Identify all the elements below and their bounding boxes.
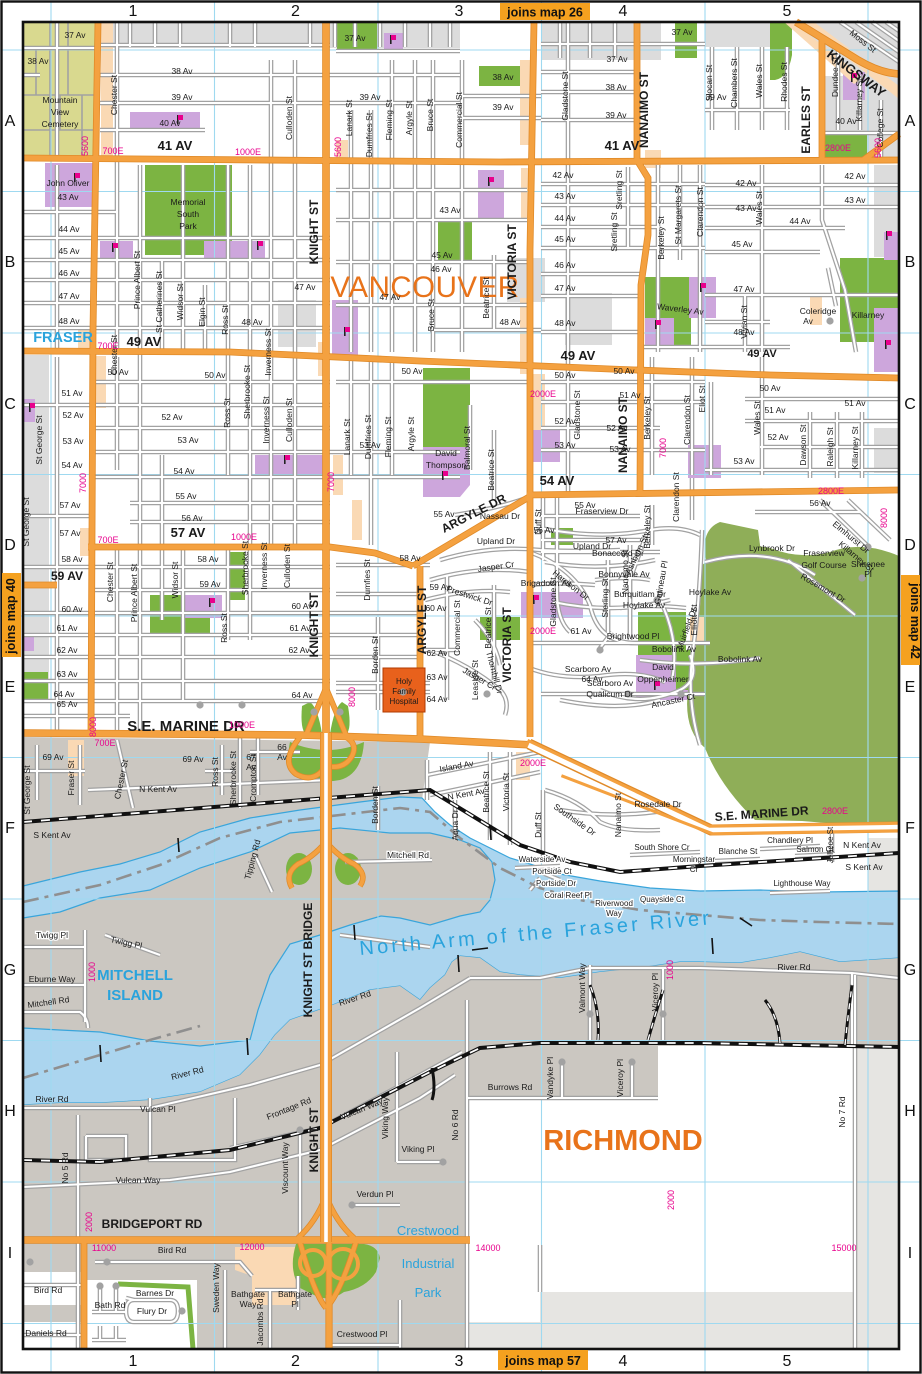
svg-text:Blanche St: Blanche St (719, 847, 758, 856)
svg-text:Victoria St: Victoria St (501, 772, 511, 811)
svg-text:46 Av: 46 Av (58, 268, 80, 278)
svg-text:Park: Park (415, 1285, 442, 1300)
svg-text:43 Av: 43 Av (554, 191, 576, 201)
svg-text:2000: 2000 (84, 1212, 94, 1232)
svg-text:E: E (5, 679, 16, 696)
svg-text:62 Av: 62 Av (56, 645, 78, 655)
svg-text:joins map 40: joins map 40 (4, 578, 18, 655)
svg-text:58 Av: 58 Av (197, 554, 219, 564)
svg-text:Berkeley St: Berkeley St (656, 216, 666, 260)
svg-text:58 Av: 58 Av (61, 554, 83, 564)
svg-text:Clarendon St: Clarendon St (695, 187, 705, 237)
svg-text:5: 5 (783, 1353, 792, 1370)
svg-text:Bruce St: Bruce St (426, 298, 436, 331)
svg-text:39 Av: 39 Av (171, 92, 193, 102)
svg-text:B: B (905, 254, 916, 271)
svg-text:NANAIMO ST: NANAIMO ST (637, 71, 651, 148)
svg-text:G: G (4, 962, 16, 979)
svg-text:FRASER: FRASER (33, 330, 93, 346)
svg-text:58 Av: 58 Av (399, 553, 421, 563)
svg-text:A: A (905, 113, 916, 130)
svg-text:KNIGHT ST: KNIGHT ST (307, 199, 321, 264)
svg-text:53 Av: 53 Av (609, 444, 631, 454)
svg-text:Inverness St: Inverness St (261, 396, 271, 444)
svg-text:42 Av: 42 Av (735, 178, 757, 188)
svg-text:KNIGHT ST: KNIGHT ST (307, 1107, 321, 1172)
svg-text:Inverness St: Inverness St (259, 542, 269, 590)
svg-text:Scarboro Av: Scarboro Av (565, 664, 612, 674)
svg-text:8000: 8000 (879, 508, 889, 528)
svg-text:St Margarets St: St Margarets St (673, 185, 683, 245)
svg-text:MITCHELL: MITCHELL (97, 967, 173, 984)
svg-text:59 AV: 59 AV (51, 569, 83, 583)
svg-text:Slocan St: Slocan St (704, 64, 714, 101)
svg-text:Park: Park (179, 221, 197, 231)
svg-text:Culloden St: Culloden St (282, 543, 292, 588)
svg-text:7000: 7000 (326, 472, 336, 492)
svg-text:Av: Av (277, 752, 288, 762)
svg-text:52 Av: 52 Av (161, 412, 183, 422)
svg-text:52 Av: 52 Av (606, 423, 628, 433)
svg-text:52 Av: 52 Av (767, 432, 789, 442)
svg-text:Bruce St: Bruce St (425, 98, 435, 131)
svg-text:Eliot St: Eliot St (697, 385, 707, 413)
svg-text:Qualicum Dr: Qualicum Dr (586, 689, 633, 699)
svg-text:2000E: 2000E (530, 389, 556, 399)
svg-text:42 Av: 42 Av (844, 171, 866, 181)
svg-text:Ross St: Ross St (210, 756, 220, 786)
svg-text:F: F (5, 820, 15, 837)
svg-text:50 Av: 50 Av (554, 370, 576, 380)
svg-text:59 Av: 59 Av (199, 579, 221, 589)
svg-text:54 Av: 54 Av (61, 460, 83, 470)
svg-text:47 Av: 47 Av (294, 282, 316, 292)
svg-text:Pl: Pl (864, 569, 872, 579)
svg-text:Scarboro Av: Scarboro Av (587, 678, 634, 688)
svg-text:F: F (905, 820, 915, 837)
svg-text:47 Av: 47 Av (733, 284, 755, 294)
svg-text:1000E: 1000E (229, 720, 255, 730)
svg-text:Clarendon St: Clarendon St (682, 395, 692, 445)
svg-text:Family: Family (392, 687, 416, 696)
svg-text:51 Av: 51 Av (844, 398, 866, 408)
svg-text:Sweden Way: Sweden Way (211, 1262, 221, 1313)
svg-text:St George St: St George St (34, 415, 44, 465)
svg-text:ARGYLE ST: ARGYLE ST (415, 585, 429, 654)
svg-text:50 Av: 50 Av (759, 383, 781, 393)
svg-text:53 Av: 53 Av (554, 440, 576, 450)
svg-text:64 Av: 64 Av (53, 689, 75, 699)
svg-text:Dumfries St: Dumfries St (364, 112, 374, 157)
svg-text:S Kent Av: S Kent Av (845, 862, 883, 872)
svg-text:Clarendon St: Clarendon St (671, 472, 681, 522)
svg-text:Valmont Way: Valmont Way (577, 962, 587, 1012)
svg-text:Hoylake Av: Hoylake Av (689, 587, 732, 597)
svg-text:Bathgate: Bathgate (231, 1289, 265, 1299)
svg-text:Prince Albert St: Prince Albert St (132, 250, 142, 309)
svg-text:Dumfies St: Dumfies St (362, 559, 372, 601)
svg-text:61 Av: 61 Av (289, 623, 311, 633)
svg-text:David: David (652, 662, 674, 672)
svg-text:Beatrice St: Beatrice St (483, 607, 493, 649)
svg-text:37 Av: 37 Av (64, 30, 86, 40)
svg-text:Fleming St: Fleming St (384, 99, 394, 140)
svg-text:48 Av: 48 Av (241, 317, 263, 327)
svg-text:Quayside Ct: Quayside Ct (640, 895, 685, 904)
svg-text:Mountain: Mountain (43, 95, 78, 105)
svg-text:Verdun Pl: Verdun Pl (357, 1189, 394, 1199)
svg-text:Viking Pl: Viking Pl (402, 1144, 435, 1154)
svg-text:Inverness St: Inverness St (263, 328, 273, 376)
svg-text:John Oliver: John Oliver (47, 178, 90, 188)
svg-text:2800E: 2800E (825, 143, 851, 153)
svg-text:64 Av: 64 Av (426, 694, 448, 704)
svg-text:Oppenheimer: Oppenheimer (637, 674, 689, 684)
svg-text:1000: 1000 (665, 960, 675, 980)
svg-text:49 AV: 49 AV (747, 348, 777, 360)
svg-text:Argyle St: Argyle St (406, 416, 416, 451)
svg-text:South Shore Cr: South Shore Cr (634, 843, 689, 852)
svg-text:Bath Rd: Bath Rd (95, 1300, 126, 1310)
svg-text:Chandlery Pl: Chandlery Pl (767, 836, 813, 845)
svg-text:57 Av: 57 Av (59, 528, 81, 538)
svg-text:41 AV: 41 AV (158, 138, 193, 153)
svg-text:Pl: Pl (291, 1299, 299, 1309)
svg-text:2000E: 2000E (520, 758, 546, 768)
svg-text:Rhodes St: Rhodes St (779, 62, 789, 102)
svg-text:Fraserview Dr: Fraserview Dr (576, 506, 629, 516)
svg-text:River Rd: River Rd (35, 1094, 68, 1104)
svg-text:38 Av: 38 Av (492, 72, 514, 82)
svg-text:2: 2 (291, 1353, 300, 1370)
svg-text:Riverwood: Riverwood (595, 899, 633, 908)
svg-text:S Kent Av: S Kent Av (33, 830, 71, 840)
svg-text:joins map 26: joins map 26 (506, 6, 583, 20)
svg-text:Berkeley St: Berkeley St (642, 396, 652, 440)
svg-text:64 Av: 64 Av (291, 690, 313, 700)
svg-text:Bird Rd: Bird Rd (34, 1285, 63, 1295)
svg-text:54 Av: 54 Av (173, 466, 195, 476)
svg-text:Raleigh St: Raleigh St (825, 427, 835, 467)
svg-text:Coral Reef Pl: Coral Reef Pl (544, 891, 592, 900)
svg-text:No 7 Rd: No 7 Rd (837, 1096, 847, 1127)
svg-text:E: E (905, 679, 916, 696)
svg-text:49 AV: 49 AV (127, 334, 162, 349)
svg-text:Killarney St: Killarney St (854, 78, 864, 122)
svg-text:C: C (904, 396, 916, 413)
svg-text:Jacombs Rd: Jacombs Rd (255, 1298, 265, 1346)
svg-text:Argyle St: Argyle St (404, 100, 414, 135)
svg-text:700E: 700E (97, 341, 118, 351)
svg-text:15000: 15000 (831, 1243, 856, 1253)
svg-text:67: 67 (246, 752, 256, 762)
svg-text:2000: 2000 (666, 1190, 676, 1210)
svg-text:42 Av: 42 Av (552, 170, 574, 180)
svg-text:Golf Course: Golf Course (801, 560, 847, 570)
svg-text:62 Av: 62 Av (426, 648, 448, 658)
svg-text:Chester St: Chester St (105, 561, 115, 602)
svg-text:1000: 1000 (87, 962, 97, 982)
svg-text:55 Av: 55 Av (175, 491, 197, 501)
svg-text:NANAIMO ST: NANAIMO ST (616, 396, 630, 473)
svg-text:Burrows Rd: Burrows Rd (488, 1082, 533, 1092)
svg-text:Crestwood Pl: Crestwood Pl (337, 1329, 388, 1339)
svg-text:Dawson St: Dawson St (798, 424, 808, 466)
svg-text:50 Av: 50 Av (613, 366, 635, 376)
svg-text:Industrial: Industrial (402, 1256, 455, 1271)
svg-text:H: H (904, 1103, 916, 1120)
svg-text:2000E: 2000E (530, 626, 556, 636)
svg-text:38 Av: 38 Av (27, 56, 49, 66)
svg-text:Hospital: Hospital (390, 697, 419, 706)
svg-text:Upland Dr: Upland Dr (477, 536, 515, 546)
svg-text:Culloden St: Culloden St (284, 397, 294, 442)
svg-text:EARLES ST: EARLES ST (799, 86, 813, 154)
svg-text:60 Av: 60 Av (61, 604, 83, 614)
svg-text:Av: Av (246, 762, 257, 772)
svg-text:Vulcan Way: Vulcan Way (116, 1175, 161, 1185)
svg-text:5: 5 (783, 3, 792, 20)
svg-text:57 AV: 57 AV (171, 525, 206, 540)
svg-text:Coleridge: Coleridge (800, 306, 837, 316)
svg-text:Wales St: Wales St (752, 401, 762, 435)
svg-text:60 Av: 60 Av (425, 603, 447, 613)
svg-text:Waterside Av: Waterside Av (519, 855, 566, 864)
svg-text:53 Av: 53 Av (62, 436, 84, 446)
svg-text:Ross St: Ross St (220, 304, 230, 334)
svg-text:49 AV: 49 AV (561, 348, 596, 363)
svg-text:44 Av: 44 Av (58, 224, 80, 234)
svg-text:45 Av: 45 Av (58, 246, 80, 256)
svg-text:David: David (435, 448, 457, 458)
svg-text:45 Av: 45 Av (431, 250, 453, 260)
svg-text:Commercial St: Commercial St (454, 91, 464, 147)
svg-text:B: B (5, 254, 16, 271)
svg-text:BRIDGEPORT RD: BRIDGEPORT RD (102, 1217, 203, 1231)
svg-text:Memorial: Memorial (171, 197, 206, 207)
svg-text:43 Av: 43 Av (439, 205, 461, 215)
svg-text:Gladstone St: Gladstone St (572, 390, 582, 440)
svg-text:5600: 5600 (80, 136, 90, 156)
svg-text:4: 4 (619, 3, 628, 20)
svg-text:69 Av: 69 Av (42, 752, 64, 762)
svg-text:Twigg Pl: Twigg Pl (36, 930, 68, 940)
svg-text:62 Av: 62 Av (288, 645, 310, 655)
svg-text:Nanaimo St: Nanaimo St (613, 792, 623, 837)
svg-text:43 Av: 43 Av (844, 195, 866, 205)
svg-text:S.E. MARINE DR: S.E. MARINE DR (127, 718, 245, 735)
svg-text:Brightwood Pl: Brightwood Pl (607, 631, 660, 641)
svg-text:7000: 7000 (658, 438, 668, 458)
svg-text:Daniels Rd: Daniels Rd (25, 1328, 67, 1338)
svg-text:Cemetery: Cemetery (42, 119, 80, 129)
svg-text:12000: 12000 (239, 1242, 264, 1252)
svg-text:55 Av: 55 Av (433, 509, 455, 519)
svg-text:Borden St: Borden St (370, 785, 380, 823)
svg-text:56 Av: 56 Av (181, 513, 203, 523)
svg-text:N Kent Av: N Kent Av (843, 840, 881, 850)
svg-text:Fleming St: Fleming St (383, 416, 393, 457)
svg-text:Viscount Way: Viscount Way (280, 1142, 290, 1194)
svg-text:48 Av: 48 Av (58, 316, 80, 326)
svg-text:G: G (904, 962, 916, 979)
svg-text:I: I (908, 1245, 912, 1262)
svg-text:Way: Way (240, 1299, 257, 1309)
svg-text:3: 3 (455, 1353, 464, 1370)
svg-text:46 Av: 46 Av (430, 264, 452, 274)
svg-text:Wales St: Wales St (754, 191, 764, 225)
svg-text:Holy: Holy (396, 677, 412, 686)
svg-text:KNIGHT ST BRIDGE: KNIGHT ST BRIDGE (301, 903, 315, 1018)
svg-text:56 Av: 56 Av (809, 498, 831, 508)
svg-text:Crestwood: Crestwood (397, 1223, 459, 1238)
svg-text:45 Av: 45 Av (731, 239, 753, 249)
svg-text:Vandyke Pl: Vandyke Pl (545, 1057, 555, 1099)
svg-text:61 Av: 61 Av (56, 623, 78, 633)
svg-text:VICTORIA ST: VICTORIA ST (505, 224, 519, 300)
svg-text:45 Av: 45 Av (554, 234, 576, 244)
svg-text:Way: Way (606, 909, 622, 918)
svg-text:Lanark St: Lanark St (344, 99, 354, 136)
svg-text:Mitchell Rd: Mitchell Rd (387, 850, 429, 860)
svg-text:57 Av: 57 Av (59, 500, 81, 510)
svg-text:Killarney St: Killarney St (850, 426, 860, 470)
svg-text:Vulcan Pl: Vulcan Pl (140, 1104, 176, 1114)
svg-text:ISLAND: ISLAND (107, 987, 163, 1004)
svg-text:Killarney: Killarney (852, 310, 885, 320)
svg-text:I: I (8, 1245, 12, 1262)
svg-text:Sherbrooke St: Sherbrooke St (228, 750, 238, 805)
svg-text:Bathgate: Bathgate (278, 1289, 312, 1299)
svg-text:700E: 700E (94, 738, 115, 748)
svg-text:River Rd: River Rd (777, 962, 810, 972)
svg-text:38 Av: 38 Av (171, 66, 193, 76)
svg-text:8000: 8000 (347, 687, 357, 707)
svg-text:1000E: 1000E (231, 532, 257, 542)
svg-text:Widsor St: Widsor St (170, 561, 180, 598)
svg-text:Cr: Cr (690, 865, 699, 874)
svg-text:Viceroy Pl: Viceroy Pl (650, 973, 660, 1011)
svg-text:No 5 Rd: No 5 Rd (60, 1152, 70, 1183)
svg-text:2800E: 2800E (822, 806, 848, 816)
svg-text:37 Av: 37 Av (344, 33, 366, 43)
svg-text:Dumfries St: Dumfries St (363, 414, 373, 459)
svg-text:Elgin St: Elgin St (197, 297, 207, 327)
svg-text:No 6 Rd: No 6 Rd (450, 1109, 460, 1140)
svg-text:47 Av: 47 Av (58, 291, 80, 301)
svg-text:Shaenee: Shaenee (851, 559, 885, 569)
svg-text:Bird Rd: Bird Rd (158, 1245, 187, 1255)
svg-text:69 Av: 69 Av (182, 754, 204, 764)
svg-text:40 Av: 40 Av (159, 118, 181, 128)
svg-text:View: View (51, 107, 70, 117)
svg-text:41 AV: 41 AV (605, 138, 640, 153)
svg-text:60 Av: 60 Av (291, 601, 313, 611)
svg-text:63 Av: 63 Av (426, 672, 448, 682)
svg-text:Chambers St: Chambers St (729, 58, 739, 108)
svg-text:7000: 7000 (78, 473, 88, 493)
svg-text:D: D (4, 537, 16, 554)
svg-text:Dundee St: Dundee St (830, 56, 840, 97)
svg-text:5600: 5600 (333, 137, 343, 157)
svg-text:47 Av: 47 Av (379, 292, 401, 302)
svg-text:43 Av: 43 Av (57, 192, 79, 202)
svg-text:47 Av: 47 Av (554, 283, 576, 293)
svg-text:Portside Dr: Portside Dr (536, 879, 576, 888)
svg-text:Lighthouse Way: Lighthouse Way (773, 879, 830, 888)
svg-text:Flury Dr: Flury Dr (137, 1306, 167, 1316)
svg-text:Av: Av (803, 316, 814, 326)
svg-text:2: 2 (291, 3, 300, 20)
svg-text:54 AV: 54 AV (540, 473, 575, 488)
svg-text:South: South (177, 209, 199, 219)
svg-text:39 Av: 39 Av (492, 102, 514, 112)
svg-text:Fraser St: Fraser St (66, 760, 76, 796)
svg-text:Sherbrooke St: Sherbrooke St (242, 364, 252, 419)
svg-text:Widsor St: Widsor St (175, 283, 185, 320)
svg-text:14000: 14000 (475, 1243, 500, 1253)
svg-text:VICTORIA ST: VICTORIA ST (500, 607, 514, 683)
svg-text:39 Av: 39 Av (359, 92, 381, 102)
svg-text:VANCOUVER: VANCOUVER (330, 271, 519, 304)
svg-text:11000: 11000 (92, 1243, 116, 1253)
svg-text:Commercial St: Commercial St (452, 599, 462, 655)
svg-text:Vivian St: Vivian St (739, 305, 749, 339)
svg-text:Chester St: Chester St (109, 74, 119, 115)
svg-text:Borden St: Borden St (370, 635, 380, 673)
svg-text:Duff St: Duff St (533, 508, 543, 534)
svg-text:48 Av: 48 Av (499, 317, 521, 327)
svg-text:Wales St: Wales St (754, 64, 764, 98)
svg-text:44 Av: 44 Av (789, 216, 811, 226)
svg-text:1: 1 (129, 1353, 138, 1370)
svg-text:700E: 700E (102, 146, 123, 156)
svg-text:N Kent Av: N Kent Av (139, 784, 177, 794)
svg-text:Ross St: Ross St (219, 612, 229, 642)
svg-text:3: 3 (455, 3, 464, 20)
svg-text:Culloden St: Culloden St (284, 95, 294, 140)
svg-text:66: 66 (277, 742, 287, 752)
svg-text:Eburne Way: Eburne Way (29, 974, 76, 984)
svg-text:1: 1 (129, 3, 138, 20)
svg-text:joins map 57: joins map 57 (504, 1354, 581, 1368)
svg-text:51 Av: 51 Av (61, 388, 83, 398)
svg-text:Sherbrooke St: Sherbrooke St (240, 540, 250, 595)
svg-text:700E: 700E (97, 535, 118, 545)
svg-text:50 Av: 50 Av (204, 370, 226, 380)
svg-text:2800E: 2800E (818, 486, 844, 496)
svg-text:Thompson: Thompson (426, 460, 466, 470)
svg-text:Sretling St: Sretling St (609, 212, 619, 252)
svg-text:44 Av: 44 Av (554, 213, 576, 223)
svg-text:1000E: 1000E (235, 147, 261, 157)
svg-text:joins map 42: joins map 42 (908, 582, 922, 659)
svg-text:Jellicoe St: Jellicoe St (826, 826, 835, 863)
svg-text:Lanark St: Lanark St (342, 418, 352, 455)
svg-text:51 Av: 51 Av (619, 390, 641, 400)
svg-text:Beatrice St: Beatrice St (486, 449, 496, 491)
svg-text:Portside Ct: Portside Ct (532, 867, 572, 876)
svg-text:8000: 8000 (88, 717, 98, 737)
svg-text:Nassau Dr: Nassau Dr (480, 511, 520, 521)
svg-text:53 Av: 53 Av (177, 435, 199, 445)
svg-text:Morningstar: Morningstar (673, 855, 716, 864)
svg-text:C: C (4, 396, 16, 413)
svg-text:5600: 5600 (873, 138, 883, 158)
svg-text:50 Av: 50 Av (401, 366, 423, 376)
svg-text:52 Av: 52 Av (62, 410, 84, 420)
svg-text:A: A (5, 113, 16, 130)
